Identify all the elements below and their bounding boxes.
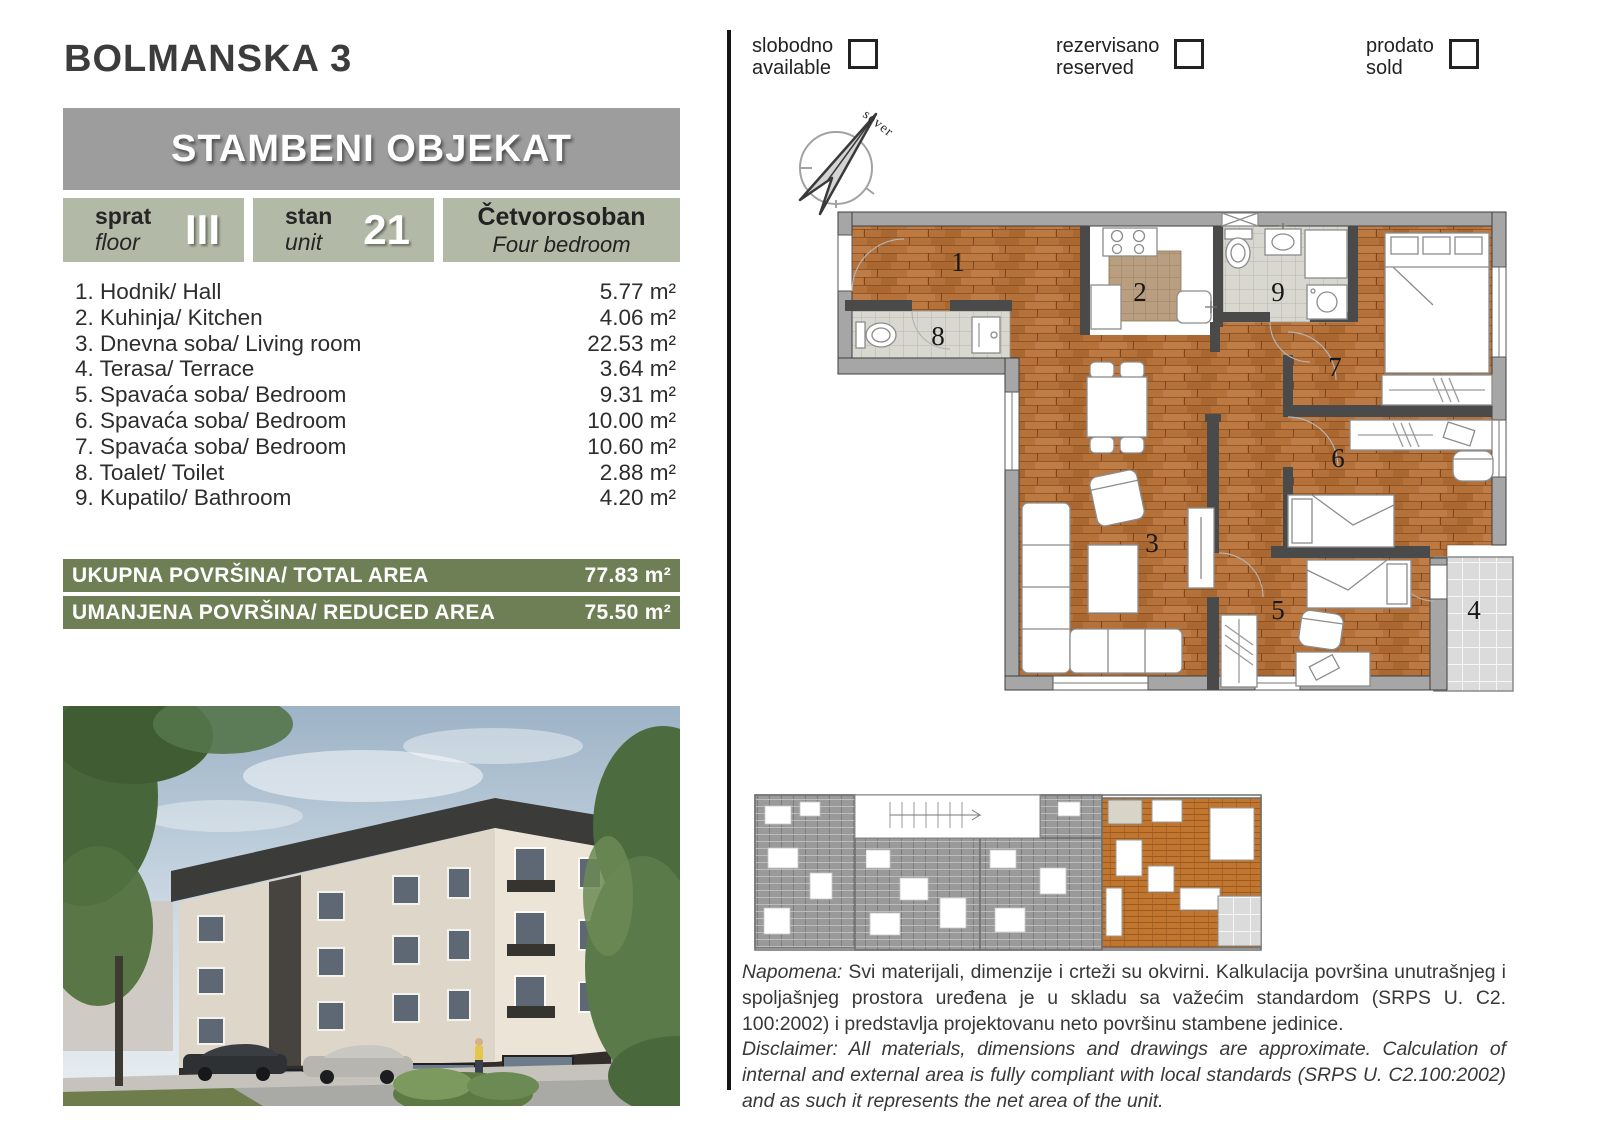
banner-title: STAMBENI OBJEKAT — [171, 128, 572, 171]
mini-floor-plan-highlight — [1102, 798, 1261, 948]
room-area: 9.31 m² — [600, 382, 676, 408]
type-label-en: Four bedroom — [492, 232, 630, 258]
kitchen-sink-icon — [1177, 291, 1217, 323]
room-label-9: 9 — [1271, 277, 1285, 307]
room-area: 5.77 m² — [600, 279, 676, 305]
vent-icon — [1222, 213, 1258, 226]
room-area: 2.88 m² — [600, 460, 676, 486]
room-label: 7. Spavaća soba/ Bedroom — [75, 434, 346, 460]
toilet-icon — [1225, 229, 1252, 268]
dresser-icon — [1382, 375, 1492, 405]
unit-value: 21 — [363, 206, 410, 254]
room-row: 3. Dnevna soba/ Living room22.53 m² — [75, 331, 676, 357]
room-label: 8. Toalet/ Toilet — [75, 460, 224, 486]
stove-icon — [1103, 228, 1157, 256]
room-area: 3.64 m² — [600, 356, 676, 382]
room-label: 4. Terasa/ Terrace — [75, 356, 254, 382]
note-serbian: Napomena: Svi materijali, dimenzije i cr… — [742, 960, 1506, 1037]
unit-info-row: sprat floor III stan unit 21 Četvorosoba… — [63, 198, 680, 262]
north-arrow: sever — [778, 96, 908, 221]
note-english-text: All materials, dimensions and drawings a… — [742, 1038, 1506, 1112]
washing-machine-icon — [1307, 285, 1347, 319]
legend-sold-en: sold — [1366, 58, 1434, 80]
double-bed-icon — [1385, 233, 1489, 373]
floor-label-en: floor — [95, 230, 151, 256]
reduced-area-bar: UMANJENA POVRŠINA/ REDUCED AREA 75.50 m² — [63, 596, 680, 629]
coffee-table-icon — [1088, 545, 1138, 613]
sold-checkbox[interactable] — [1449, 39, 1479, 69]
office-chair-icon — [1453, 451, 1493, 481]
room-list: 1. Hodnik/ Hall5.77 m² 2. Kuhinja/ Kitch… — [75, 279, 676, 511]
floor-value: III — [185, 206, 220, 254]
small-sink-icon — [972, 317, 1000, 353]
pedestrian — [475, 1038, 483, 1076]
room-row: 1. Hodnik/ Hall5.77 m² — [75, 279, 676, 305]
room-label-5: 5 — [1271, 595, 1285, 625]
total-area-value: 77.83 m² — [585, 564, 671, 588]
room-label: 3. Dnevna soba/ Living room — [75, 331, 361, 357]
unit-label-en: unit — [285, 230, 332, 256]
room-area: 4.20 m² — [600, 485, 676, 511]
room-label-6: 6 — [1331, 443, 1345, 473]
brochure-page: { "page": { "title": "BOLMANSKA 3" }, "b… — [0, 0, 1600, 1131]
reduced-area-label: UMANJENA POVRŠINA/ REDUCED AREA — [72, 601, 495, 625]
room-label: 9. Kupatilo/ Bathroom — [75, 485, 291, 511]
room-row: 7. Spavaća soba/ Bedroom10.60 m² — [75, 434, 676, 460]
room-label: 1. Hodnik/ Hall — [75, 279, 221, 305]
room-area: 22.53 m² — [587, 331, 676, 357]
reduced-area-value: 75.50 m² — [585, 601, 671, 625]
room-label: 5. Spavaća soba/ Bedroom — [75, 382, 346, 408]
project-title: BOLMANSKA 3 — [64, 38, 352, 81]
stairs-icon — [855, 795, 1040, 838]
floor-plan: 1 2 3 4 5 6 7 8 9 — [833, 205, 1523, 697]
room-label-7: 7 — [1328, 352, 1342, 382]
room-row: 9. Kupatilo/ Bathroom4.20 m² — [75, 485, 676, 511]
room-area: 10.60 m² — [587, 434, 676, 460]
building-photo — [63, 706, 680, 1106]
legend-reserved: rezervisano reserved — [1056, 36, 1204, 79]
floor-label-sr: sprat — [95, 204, 151, 230]
note-english: Disclaimer: All materials, dimensions an… — [742, 1037, 1506, 1114]
room-label-4: 4 — [1467, 595, 1481, 625]
bushes — [393, 1068, 539, 1106]
available-checkbox[interactable] — [848, 39, 878, 69]
chair-icon — [1298, 609, 1345, 650]
room-row: 6. Spavaća soba/ Bedroom10.00 m² — [75, 408, 676, 434]
legend-reserved-sr: rezervisano — [1056, 36, 1159, 58]
shower-icon — [1305, 230, 1347, 278]
single-bed-icon — [1288, 495, 1394, 547]
reserved-checkbox[interactable] — [1174, 39, 1204, 69]
armchair-icon — [1088, 469, 1145, 528]
room-row: 2. Kuhinja/ Kitchen4.06 m² — [75, 305, 676, 331]
wardrobe-icon — [1221, 615, 1257, 687]
desk-icon — [1350, 420, 1492, 450]
type-label-sr: Četvorosoban — [477, 203, 645, 232]
fridge-icon — [1091, 285, 1121, 329]
room-row: 5. Spavaća soba/ Bedroom9.31 m² — [75, 382, 676, 408]
legend-available-sr: slobodno — [752, 36, 833, 58]
column-divider — [727, 30, 731, 1090]
building-type-banner: STAMBENI OBJEKAT — [63, 108, 680, 190]
note-serbian-label: Napomena: — [742, 961, 842, 983]
room-row: 4. Terasa/ Terrace3.64 m² — [75, 356, 676, 382]
room-label: 6. Spavaća soba/ Bedroom — [75, 408, 346, 434]
total-area-label: UKUPNA POVRŠINA/ TOTAL AREA — [72, 564, 429, 588]
desk-icon — [1296, 652, 1370, 686]
tv-stand-icon — [1188, 508, 1214, 588]
room-label-2: 2 — [1133, 277, 1147, 307]
note-serbian-text: Svi materijali, dimenzije i crteži su ok… — [742, 961, 1506, 1035]
unit-info-box: stan unit 21 — [253, 198, 434, 262]
room-label: 2. Kuhinja/ Kitchen — [75, 305, 263, 331]
mini-floor-plan — [740, 778, 1285, 958]
apartment-type-box: Četvorosoban Four bedroom — [443, 198, 680, 262]
notes: Napomena: Svi materijali, dimenzije i cr… — [742, 960, 1506, 1115]
legend-available: slobodno available — [752, 36, 878, 79]
legend-sold-sr: prodato — [1366, 36, 1434, 58]
floor-info-box: sprat floor III — [63, 198, 244, 262]
single-bed-icon — [1307, 560, 1411, 608]
mini-terrace — [1218, 896, 1261, 946]
room-label-3: 3 — [1145, 528, 1159, 558]
room-area: 10.00 m² — [587, 408, 676, 434]
legend-sold: prodato sold — [1366, 36, 1479, 79]
toilet-icon — [856, 322, 896, 348]
room-row: 8. Toalet/ Toilet2.88 m² — [75, 460, 676, 486]
unit-label-sr: stan — [285, 204, 332, 230]
total-area-bar: UKUPNA POVRŠINA/ TOTAL AREA 77.83 m² — [63, 559, 680, 592]
room-area: 4.06 m² — [600, 305, 676, 331]
note-english-label: Disclaimer: — [742, 1038, 838, 1060]
legend-reserved-en: reserved — [1056, 58, 1159, 80]
legend-available-en: available — [752, 58, 833, 80]
room-label-1: 1 — [951, 247, 965, 277]
room-label-8: 8 — [931, 321, 945, 351]
